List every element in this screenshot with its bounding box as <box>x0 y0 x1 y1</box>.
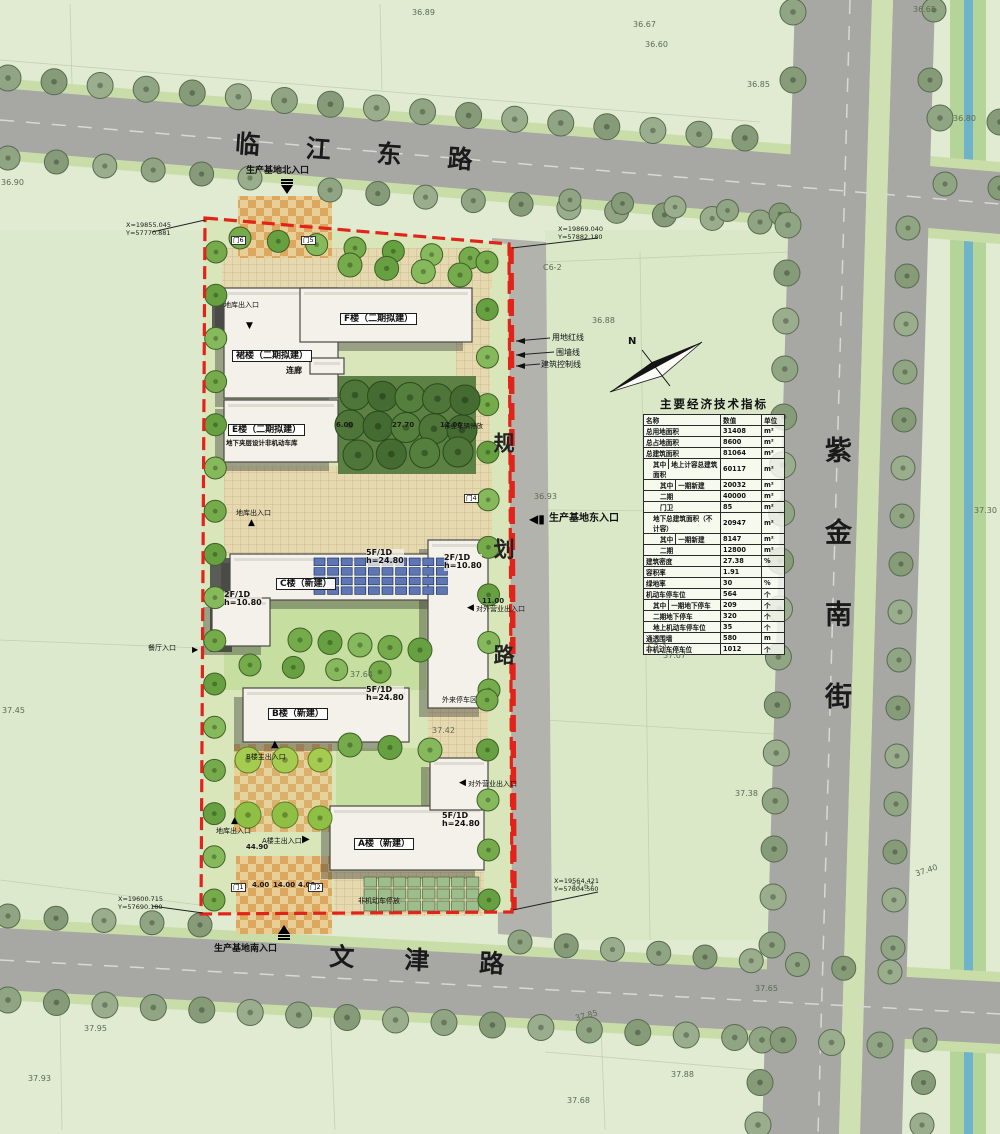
spot-elevation-label: 36.85 <box>747 80 770 89</box>
table-row: 其中一期新建8147m² <box>644 534 785 545</box>
building-a-main-entrance-icon: ▶ <box>302 835 310 845</box>
building-b-main-entrance-icon: ▲ <box>271 740 279 750</box>
external-business-entrance-1-icon: ◀ <box>467 604 474 613</box>
table-row: 容积率1.91 <box>644 567 785 578</box>
road-name-east: 紫金南街 <box>820 436 851 764</box>
entrance-south-icon <box>277 925 291 941</box>
table-header-name: 名称 <box>644 415 721 426</box>
economic-indicator-table: 主要经济技术指标 名称 数值 单位总用地面积31408m²总占地面积8600m²… <box>643 396 785 655</box>
building-b-label: B楼（新建） <box>268 708 328 720</box>
gate-label: 门6 <box>231 236 246 245</box>
building-c-label: C楼（新建） <box>276 578 336 590</box>
spot-elevation-label: 37.95 <box>84 1024 107 1033</box>
entrance-north-label: 生产基地北入口 <box>246 166 309 176</box>
building-a-label: A楼（新建） <box>354 838 414 850</box>
entrance-north-icon <box>280 178 294 194</box>
dimension-label: 27.70 <box>392 421 414 429</box>
table-row: 绿地率30% <box>644 578 785 589</box>
building-b-main-entrance-label: B楼主出入口 <box>246 753 286 761</box>
table-row: 其中一期地下停车209个 <box>644 600 785 611</box>
north-compass: N <box>600 330 710 400</box>
garage-entrance-1-icon: ▼ <box>246 322 253 331</box>
spot-elevation-label: 37.42 <box>432 726 455 735</box>
spot-elevation-label: 37.88 <box>671 1070 694 1079</box>
external-business-entrance-1-label: 对外营业出入口 <box>476 605 525 613</box>
gate-label: 门5 <box>301 236 316 245</box>
table-row: 门卫85m² <box>644 502 785 513</box>
dimension-label: 6.00 <box>336 421 353 429</box>
non-motor-parking-label: 非机动车停放 <box>358 897 400 905</box>
spot-elevation-label: 37.68 <box>567 1096 590 1105</box>
dimension-label: 14.00 <box>273 881 295 889</box>
table-title: 主要经济技术指标 <box>643 396 785 412</box>
building-a-spec: 5F/1Dh=24.80 <box>442 812 480 829</box>
table-header-unit: 单位 <box>762 415 785 426</box>
coordinate-bottom-left: X=19600.715Y=57690.180 <box>118 896 163 912</box>
table-row: 地上机动车停车位35个 <box>644 622 785 633</box>
dimension-label: 12.00 <box>440 421 462 429</box>
table-header-value: 数值 <box>721 415 762 426</box>
spot-elevation-label: 37.38 <box>735 789 758 798</box>
building-qunlou-label: 裙楼（二期拟建） <box>232 350 312 362</box>
spot-elevation-label: 36.90 <box>1 178 24 187</box>
coordinate-top-left: X=19855.045Y=57770.881 <box>126 222 171 238</box>
building-f-label: F楼（二期拟建） <box>340 313 417 325</box>
spot-elevation-label: 37.93 <box>28 1074 51 1083</box>
dimension-label: 44.90 <box>246 843 268 851</box>
spot-elevation-label: 37.30 <box>974 506 997 515</box>
canteen-entrance-icon: ▶ <box>192 646 198 654</box>
spot-elevation-label: 36.60 <box>645 40 668 49</box>
dimension-label: 4.00 <box>252 881 269 889</box>
table-row: 其中地上计容总建筑面积60117m² <box>644 459 785 480</box>
spot-elevation-label: 36.67 <box>633 20 656 29</box>
garage-entrance-2-label: 地库出入口 <box>236 509 271 517</box>
spot-elevation-label: 36.88 <box>592 316 615 325</box>
table-row: 建筑密度27.38% <box>644 556 785 567</box>
spot-elevation-label: 36.89 <box>412 8 435 17</box>
spot-elevation-label: C5-3 <box>648 641 667 650</box>
table-row: 总建筑面积81064m² <box>644 448 785 459</box>
garage-entrance-2-icon: ▲ <box>248 519 255 528</box>
table-row: 机动车停车位564个 <box>644 589 785 600</box>
spot-elevation-label: 36.80 <box>953 114 976 123</box>
spot-elevation-label: 37.64 <box>350 670 373 679</box>
garage-entrance-3-icon: ▲ <box>231 817 238 826</box>
table-row: 二期12800m² <box>644 545 785 556</box>
spot-elevation-label: 37.67 <box>571 882 594 891</box>
building-e-label: E楼（二期拟建） <box>228 424 305 436</box>
building-d-spec: 2F/1Dh=10.80 <box>444 554 482 571</box>
table-row: 二期地下停车320个 <box>644 611 785 622</box>
compass-n-letter: N <box>628 336 636 347</box>
table-row: 地下总建筑面积（不计容）20947m² <box>644 513 785 534</box>
building-c-spec: 5F/1Dh=24.80 <box>366 549 404 566</box>
spot-elevation-label: 36.93 <box>534 492 557 501</box>
gate-label: 门1 <box>231 883 246 892</box>
control-line-label: 建筑控制线 <box>541 360 581 369</box>
entrance-east-label: 生产基地东入口 <box>549 513 619 525</box>
corridor-label: 连廊 <box>286 366 302 375</box>
table-row: 二期40000m² <box>644 491 785 502</box>
building-b-spec: 5F/1Dh=24.80 <box>366 686 404 703</box>
garage-entrance-3-label: 地库出入口 <box>216 827 251 835</box>
canteen-entrance-label: 餐厅入口 <box>148 644 176 652</box>
road-name-mid: 规划路 <box>491 432 515 750</box>
gate-label: 门2 <box>308 883 323 892</box>
gate-label: 门4 <box>464 494 479 503</box>
spot-elevation-label: 37.65 <box>755 984 778 993</box>
coordinate-top-right: X=19869.040Y=57882.180 <box>558 226 603 242</box>
table-row: 其中一期新建20032m² <box>644 480 785 491</box>
spot-elevation-label: 37.45 <box>2 706 25 715</box>
building-e-sublabel: 地下夹层设计非机动车库 <box>226 440 298 447</box>
visitor-parking-label: 外来停车区 <box>442 696 477 704</box>
red-line-label: 用地红线 <box>552 333 584 342</box>
external-business-entrance-2-label: 对外营业出入口 <box>468 780 517 788</box>
dimension-label: 11.00 <box>482 597 504 605</box>
table-row: 总占地面积8600m² <box>644 437 785 448</box>
external-business-entrance-2-icon: ◀ <box>459 779 466 788</box>
spot-elevation-label: 37.67 <box>663 651 686 660</box>
entrance-east-icon: ◀▮ <box>529 513 545 525</box>
spot-elevation-label: C6-2 <box>543 263 562 272</box>
wall-line-label: 围墙线 <box>556 348 580 357</box>
building-w-spec: 2F/1Dh=10.80 <box>224 591 262 608</box>
entrance-south-label: 生产基地南入口 <box>214 944 277 954</box>
garage-entrance-1-label: 地库出入口 <box>224 301 259 309</box>
table-row: 总用地面积31408m² <box>644 426 785 437</box>
site-plan: 临江东路 文津路 紫金南街 规划路 生产基地北入口 生产基地东入口 ◀▮ 生产基… <box>0 0 1000 1134</box>
spot-elevation-label: 36.65 <box>913 5 936 14</box>
